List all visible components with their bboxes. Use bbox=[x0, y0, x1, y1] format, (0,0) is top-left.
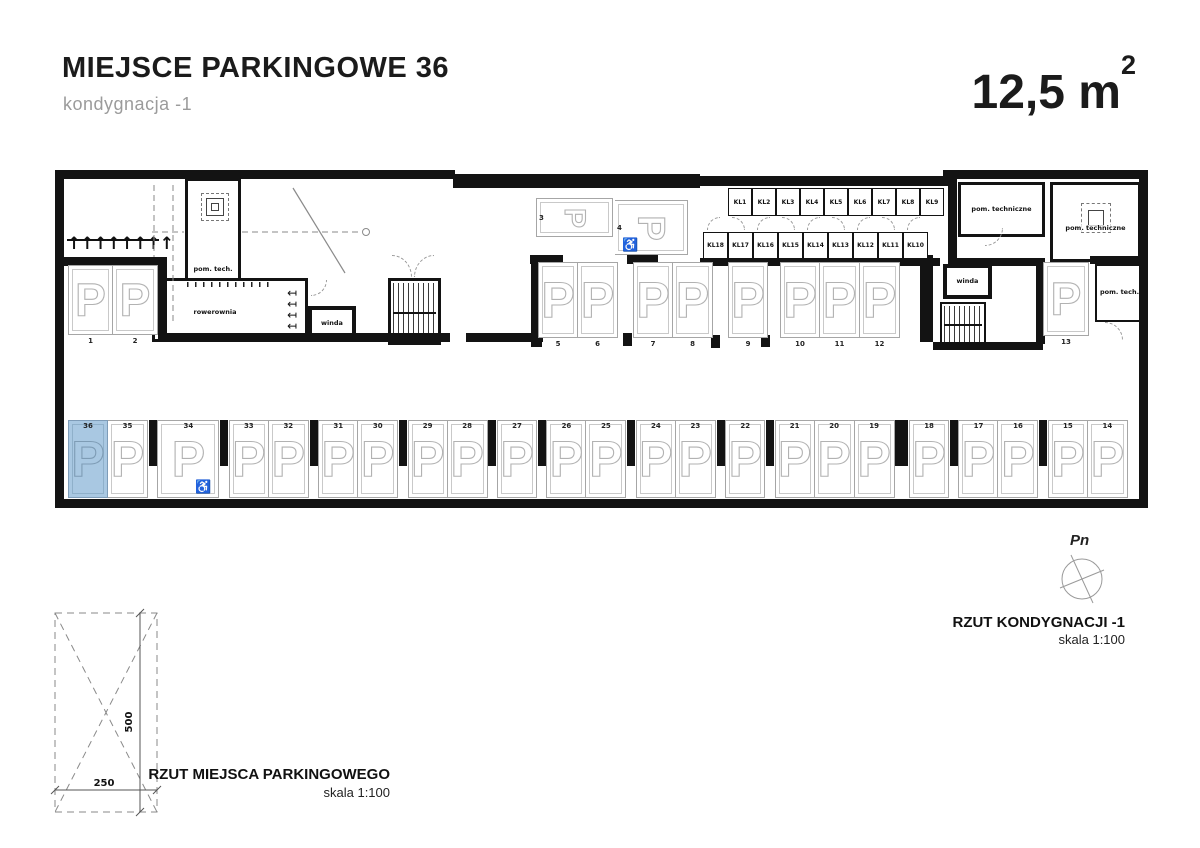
locker-door-arc bbox=[907, 217, 920, 230]
space-number: 23 bbox=[676, 422, 715, 430]
room-pom-techniczne-b: pom. techniczne bbox=[1050, 182, 1141, 262]
space-number: 36 bbox=[69, 422, 107, 430]
parking-symbol: P bbox=[450, 434, 483, 484]
room-winda-right: winda bbox=[943, 264, 992, 299]
wall bbox=[948, 258, 1043, 266]
ramp-lines bbox=[147, 180, 377, 335]
wall bbox=[158, 258, 167, 338]
parking-symbol: P bbox=[232, 434, 265, 484]
area-exponent: 2 bbox=[1121, 50, 1136, 80]
parking-symbol: P bbox=[172, 434, 205, 484]
parking-space-1[interactable]: P1 bbox=[68, 265, 113, 335]
parking-space-32[interactable]: P32 bbox=[269, 420, 309, 498]
space-number: 26 bbox=[547, 422, 585, 430]
column bbox=[895, 420, 908, 466]
parking-space-22[interactable]: P22 bbox=[725, 420, 765, 498]
parking-space-23[interactable]: P23 bbox=[676, 420, 716, 498]
locker-KL13[interactable]: KL13 bbox=[828, 232, 853, 259]
locker-KL16[interactable]: KL16 bbox=[753, 232, 778, 259]
space-number: 21 bbox=[776, 422, 814, 430]
space-number: 12 bbox=[860, 340, 899, 348]
compass-icon bbox=[1047, 548, 1119, 614]
parking-space-14[interactable]: P14 bbox=[1088, 420, 1128, 498]
locker-door-arc bbox=[882, 217, 895, 230]
parking-space-33[interactable]: P33 bbox=[229, 420, 269, 498]
parking-space-34[interactable]: P♿34 bbox=[157, 420, 219, 498]
wall bbox=[948, 178, 957, 260]
parking-space-27[interactable]: P27 bbox=[497, 420, 537, 498]
room-label: pom. tech. bbox=[1100, 289, 1139, 296]
parking-symbol: P bbox=[962, 434, 995, 484]
page-title: MIEJSCE PARKINGOWE 36 bbox=[62, 52, 449, 85]
parking-plan-page: MIEJSCE PARKINGOWE 36 kondygnacja -1 12,… bbox=[0, 0, 1200, 848]
bike-stand-icon: ↑↑↑↑ bbox=[67, 234, 120, 254]
space-number: 35 bbox=[108, 422, 147, 430]
parking-space-30[interactable]: P30 bbox=[358, 420, 398, 498]
parking-space-8[interactable]: P8 bbox=[673, 262, 713, 338]
locker-row: KL18KL17KL16KL15KL14KL13KL12KL11KL10 bbox=[703, 232, 928, 259]
parking-space-20[interactable]: P20 bbox=[815, 420, 855, 498]
parking-symbol: P bbox=[679, 434, 712, 484]
parking-space-18[interactable]: P18 bbox=[909, 420, 949, 498]
locker-KL5[interactable]: KL5 bbox=[824, 188, 848, 216]
parking-symbol: P bbox=[676, 275, 709, 325]
parking-symbol: P bbox=[639, 434, 672, 484]
space-number: 18 bbox=[910, 422, 948, 430]
column bbox=[488, 420, 496, 466]
parking-group: P♿34 bbox=[157, 420, 219, 498]
parking-space-28[interactable]: P28 bbox=[448, 420, 488, 498]
bike-rack-icons: ↑↑↑↑ ↑↑↑↑ bbox=[67, 208, 159, 254]
locker-KL1[interactable]: KL1 bbox=[728, 188, 752, 216]
parking-group: P24P23 bbox=[636, 420, 716, 498]
parking-row-left: P1P2 bbox=[68, 265, 158, 335]
parking-space-36[interactable]: P36 bbox=[68, 420, 108, 498]
parking-space-4[interactable]: P♿4 bbox=[615, 200, 688, 255]
column bbox=[310, 420, 318, 466]
parking-space-7[interactable]: P7 bbox=[633, 262, 673, 338]
parking-space-3[interactable]: P3 bbox=[536, 198, 613, 237]
parking-symbol: P bbox=[272, 434, 305, 484]
stairs-divider bbox=[944, 324, 982, 326]
parking-group: P10P11P12 bbox=[780, 262, 900, 338]
parking-group: P15P14 bbox=[1048, 420, 1128, 498]
parking-symbol: P bbox=[71, 434, 104, 484]
compass-north-label: Pn bbox=[1070, 532, 1089, 549]
parking-symbol: P bbox=[823, 275, 856, 325]
locker-door-arc bbox=[757, 217, 770, 230]
parking-symbol: P bbox=[729, 434, 762, 484]
locker-KL11[interactable]: KL11 bbox=[878, 232, 903, 259]
wall bbox=[920, 255, 933, 342]
parking-space-9[interactable]: P9 bbox=[728, 262, 768, 338]
parking-symbol: P bbox=[863, 275, 896, 325]
door-swing-arc bbox=[1105, 322, 1123, 340]
room-label: pom. techniczne bbox=[1053, 225, 1138, 232]
locker-KL15[interactable]: KL15 bbox=[778, 232, 803, 259]
wall bbox=[453, 174, 700, 188]
parking-symbol: P bbox=[361, 434, 394, 484]
column bbox=[766, 420, 774, 466]
parking-space-5[interactable]: P5 bbox=[538, 262, 578, 338]
space-number: 2 bbox=[113, 337, 157, 345]
wall bbox=[1090, 256, 1148, 264]
locker-KL2[interactable]: KL2 bbox=[752, 188, 776, 216]
site-plan-caption: RZUT KONDYGNACJI -1 bbox=[925, 614, 1125, 631]
column bbox=[950, 420, 958, 466]
locker-KL17[interactable]: KL17 bbox=[728, 232, 753, 259]
parking-symbol: P bbox=[120, 277, 151, 323]
space-number: 16 bbox=[998, 422, 1037, 430]
detail-height-dim: 500 bbox=[124, 712, 135, 733]
parking-symbol: P bbox=[1001, 434, 1034, 484]
space-number: 25 bbox=[586, 422, 625, 430]
parking-symbol: P bbox=[1091, 434, 1124, 484]
parking-space-25[interactable]: P25 bbox=[586, 420, 626, 498]
space-number: 27 bbox=[498, 422, 536, 430]
parking-group: P31P30 bbox=[318, 420, 398, 498]
parking-symbol: P bbox=[589, 434, 622, 484]
parking-space-2[interactable]: P2 bbox=[113, 265, 158, 335]
parking-symbol: P bbox=[783, 275, 816, 325]
stairs-right bbox=[940, 302, 986, 346]
parking-symbol: P bbox=[581, 275, 614, 325]
page-subtitle: kondygnacja -1 bbox=[63, 94, 192, 115]
space-number: 24 bbox=[637, 422, 675, 430]
locker-KL3[interactable]: KL3 bbox=[776, 188, 800, 216]
parking-row-bottom: P36P35P♿34P33P32P31P30P29P28P27P26P25P24… bbox=[68, 420, 1128, 500]
space-number: 7 bbox=[634, 340, 672, 348]
parking-group: P22 bbox=[725, 420, 765, 498]
space-number: 15 bbox=[1049, 422, 1087, 430]
wall bbox=[158, 333, 450, 342]
parking-symbol: P bbox=[559, 207, 589, 227]
space-number: 1 bbox=[69, 337, 112, 345]
space-number: 22 bbox=[726, 422, 764, 430]
floor-plan: pom. tech. rowerownia ↤↤↤↤ winda pom. te… bbox=[55, 170, 1148, 510]
parking-group: P26P25 bbox=[546, 420, 626, 498]
space-number: 4 bbox=[617, 224, 622, 232]
space-number: 11 bbox=[820, 340, 859, 348]
parking-group: P18 bbox=[909, 420, 949, 498]
parking-symbol: P bbox=[1051, 434, 1084, 484]
parking-space-12[interactable]: P12 bbox=[860, 262, 900, 338]
space-number: 3 bbox=[539, 214, 544, 222]
locker-KL12[interactable]: KL12 bbox=[853, 232, 878, 259]
parking-space-13[interactable]: P13 bbox=[1043, 262, 1089, 336]
parking-space-10[interactable]: P10 bbox=[780, 262, 820, 338]
space-number: 28 bbox=[448, 422, 487, 430]
space-number: 14 bbox=[1088, 422, 1127, 430]
locker-KL9[interactable]: KL9 bbox=[920, 188, 944, 216]
room-pom-tech-right: pom. tech. bbox=[1095, 264, 1144, 322]
locker-door-arc bbox=[707, 217, 720, 230]
area-value: 12,5 m2 bbox=[972, 50, 1136, 120]
detail-caption: RZUT MIEJSCA PARKINGOWEGO bbox=[140, 766, 390, 783]
column bbox=[149, 420, 157, 466]
door-swing-arc bbox=[985, 228, 1003, 246]
locker-KL6[interactable]: KL6 bbox=[848, 188, 872, 216]
parking-symbol: P bbox=[111, 434, 144, 484]
wall bbox=[55, 499, 1148, 508]
space-number: 31 bbox=[319, 422, 357, 430]
parking-symbol: P bbox=[731, 275, 764, 325]
parking-space-11[interactable]: P11 bbox=[820, 262, 860, 338]
parking-space-16[interactable]: P16 bbox=[998, 420, 1038, 498]
locker-door-arc bbox=[732, 217, 745, 230]
parking-group: P5P6 bbox=[538, 262, 618, 338]
parking-symbol: P bbox=[857, 434, 890, 484]
column bbox=[627, 420, 635, 466]
parking-group: P33P32 bbox=[229, 420, 309, 498]
parking-space-6[interactable]: P6 bbox=[578, 262, 618, 338]
wall bbox=[943, 170, 1148, 179]
space-number: 13 bbox=[1044, 338, 1088, 346]
parking-space-26[interactable]: P26 bbox=[546, 420, 586, 498]
wall bbox=[1139, 170, 1148, 508]
column bbox=[717, 420, 725, 466]
room-label: winda bbox=[957, 278, 979, 285]
parking-group: P36P35 bbox=[68, 420, 148, 498]
space-number: 19 bbox=[855, 422, 894, 430]
wall bbox=[933, 342, 1043, 350]
parking-symbol: P bbox=[500, 434, 533, 484]
parking-symbol: P bbox=[778, 434, 811, 484]
locker-KL18[interactable]: KL18 bbox=[703, 232, 728, 259]
column bbox=[1039, 420, 1047, 466]
parking-group: P7P8 bbox=[633, 262, 713, 338]
space-number: 32 bbox=[269, 422, 308, 430]
parking-space-31[interactable]: P31 bbox=[318, 420, 358, 498]
parking-symbol: P bbox=[636, 275, 669, 325]
column bbox=[538, 420, 546, 466]
wheelchair-icon: ♿ bbox=[195, 480, 211, 493]
door-swing-arc bbox=[392, 255, 412, 277]
space-number: 5 bbox=[539, 340, 577, 348]
space-number: 29 bbox=[409, 422, 447, 430]
parking-space-15[interactable]: P15 bbox=[1048, 420, 1088, 498]
stairs-divider bbox=[393, 312, 436, 314]
parking-symbol: P bbox=[541, 275, 574, 325]
room-label: pom. techniczne bbox=[971, 206, 1031, 213]
parking-group: P17P16 bbox=[958, 420, 1038, 498]
parking-space-35[interactable]: P35 bbox=[108, 420, 148, 498]
space-number: 30 bbox=[358, 422, 397, 430]
parking-space-19[interactable]: P19 bbox=[855, 420, 895, 498]
parking-symbol: P bbox=[550, 434, 583, 484]
parking-space-21[interactable]: P21 bbox=[775, 420, 815, 498]
space-number: 33 bbox=[230, 422, 268, 430]
wall bbox=[55, 170, 64, 508]
parking-symbol: P bbox=[411, 434, 444, 484]
parking-symbol: P bbox=[817, 434, 850, 484]
locker-door-arc bbox=[857, 217, 870, 230]
parking-symbol: P bbox=[912, 434, 945, 484]
parking-space-24[interactable]: P24 bbox=[636, 420, 676, 498]
locker-KL7[interactable]: KL7 bbox=[872, 188, 896, 216]
locker-door-arc bbox=[832, 217, 845, 230]
wall bbox=[55, 170, 455, 179]
door-swing-arc bbox=[414, 255, 434, 277]
space-number: 6 bbox=[578, 340, 617, 348]
space-number: 8 bbox=[673, 340, 712, 348]
detail-scale: skala 1:100 bbox=[140, 785, 390, 800]
parking-symbol: P bbox=[1051, 276, 1082, 322]
parking-group: P29P28 bbox=[408, 420, 488, 498]
parking-group: P27 bbox=[497, 420, 537, 498]
wall bbox=[695, 176, 948, 186]
space-number: 10 bbox=[781, 340, 819, 348]
locker-KL14[interactable]: KL14 bbox=[803, 232, 828, 259]
parking-group: P9 bbox=[728, 262, 768, 338]
detail-width-dim: 250 bbox=[94, 778, 115, 789]
parking-group: P21P20P19 bbox=[775, 420, 895, 498]
column bbox=[220, 420, 228, 466]
wheelchair-icon: ♿ bbox=[622, 238, 638, 251]
space-number: 9 bbox=[729, 340, 767, 348]
site-plan-scale: skala 1:100 bbox=[925, 632, 1125, 647]
area-number: 12,5 m bbox=[972, 66, 1121, 119]
locker-door-arc bbox=[807, 217, 820, 230]
parking-space-29[interactable]: P29 bbox=[408, 420, 448, 498]
column bbox=[399, 420, 407, 466]
parking-symbol: P bbox=[322, 434, 355, 484]
space-number: 17 bbox=[959, 422, 997, 430]
locker-KL10[interactable]: KL10 bbox=[903, 232, 928, 259]
space-number: 34 bbox=[158, 422, 218, 430]
locker-row: KL1KL2KL3KL4KL5KL6KL7KL8KL9 bbox=[728, 188, 944, 216]
parking-row-middle: P5P6P7P8P9P10P11P12 bbox=[538, 262, 900, 338]
parking-symbol: P bbox=[75, 277, 106, 323]
locker-KL4[interactable]: KL4 bbox=[800, 188, 824, 216]
locker-door-arc bbox=[782, 217, 795, 230]
locker-KL8[interactable]: KL8 bbox=[896, 188, 920, 216]
space-number: 20 bbox=[815, 422, 854, 430]
parking-space-17[interactable]: P17 bbox=[958, 420, 998, 498]
